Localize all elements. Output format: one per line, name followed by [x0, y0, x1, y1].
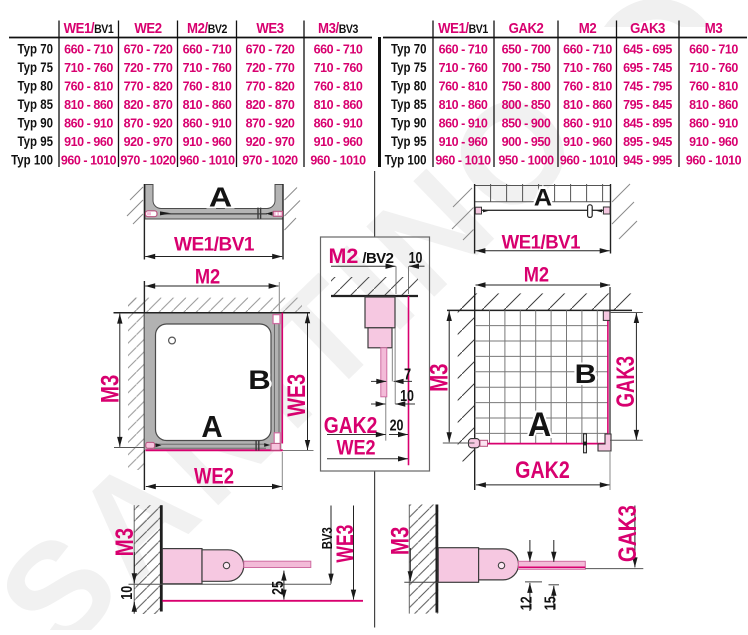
svg-text:700 - 750: 700 - 750 [502, 61, 551, 75]
svg-text:695 - 745: 695 - 745 [623, 61, 672, 75]
svg-text:Typ 95: Typ 95 [391, 134, 427, 149]
svg-text:M3: M3 [424, 363, 452, 391]
svg-text:Typ 85: Typ 85 [391, 97, 427, 112]
svg-text:870 - 920: 870 - 920 [124, 117, 173, 131]
svg-text:10: 10 [409, 250, 423, 268]
svg-text:820 - 870: 820 - 870 [246, 98, 295, 112]
svg-text:960 - 1010: 960 - 1010 [686, 154, 742, 168]
svg-text:860 - 910: 860 - 910 [183, 117, 232, 131]
svg-text:GAK3: GAK3 [611, 356, 639, 407]
svg-text:M3: M3 [705, 19, 723, 36]
svg-text:710 - 760: 710 - 760 [64, 61, 113, 75]
svg-text:860 - 910: 860 - 910 [439, 117, 488, 131]
svg-text:A: A [528, 406, 551, 444]
svg-text:Typ 70: Typ 70 [18, 42, 54, 57]
svg-text:20: 20 [390, 417, 404, 435]
svg-text:WE1/BV1: WE1/BV1 [502, 231, 580, 252]
svg-text:Typ 80: Typ 80 [391, 79, 427, 94]
svg-text:Typ 90: Typ 90 [18, 116, 54, 131]
svg-text:660 - 710: 660 - 710 [439, 43, 488, 57]
svg-text:Typ 75: Typ 75 [391, 60, 427, 75]
svg-text:760 - 810: 760 - 810 [183, 80, 232, 94]
svg-text:WE3: WE3 [256, 19, 284, 36]
svg-text:945 - 995: 945 - 995 [623, 154, 672, 168]
svg-text:670 - 720: 670 - 720 [124, 43, 173, 57]
svg-text:810 - 860: 810 - 860 [183, 98, 232, 112]
svg-text:760 - 810: 760 - 810 [439, 80, 488, 94]
svg-text:GAK2: GAK2 [515, 456, 570, 483]
svg-text:10: 10 [119, 586, 137, 600]
svg-text:B: B [575, 359, 597, 389]
svg-text:15: 15 [542, 596, 560, 610]
svg-text:A: A [534, 185, 552, 211]
svg-text:M2: M2 [524, 263, 549, 286]
svg-text:760 - 810: 760 - 810 [64, 80, 113, 94]
svg-text:GAK3: GAK3 [613, 505, 641, 562]
svg-text:770 - 820: 770 - 820 [246, 80, 295, 94]
svg-text:900 - 950: 900 - 950 [502, 135, 551, 149]
svg-text:7: 7 [404, 366, 411, 384]
svg-text:960 - 1010: 960 - 1010 [310, 154, 366, 168]
svg-text:Typ 100: Typ 100 [11, 153, 53, 168]
svg-text:960 - 1010: 960 - 1010 [560, 154, 616, 168]
svg-text:12: 12 [518, 596, 536, 610]
svg-text:760 - 810: 760 - 810 [563, 80, 612, 94]
svg-text:960 - 1010: 960 - 1010 [179, 154, 235, 168]
svg-text:Typ 80: Typ 80 [18, 79, 54, 94]
svg-text:810 - 860: 810 - 860 [314, 98, 363, 112]
svg-text:WE2: WE2 [336, 436, 375, 460]
svg-text:Typ 90: Typ 90 [391, 116, 427, 131]
svg-text:720 - 770: 720 - 770 [124, 61, 173, 75]
svg-text:B: B [248, 366, 270, 396]
svg-text:Typ 95: Typ 95 [18, 134, 54, 149]
svg-text:WE3: WE3 [283, 374, 311, 417]
svg-text:Typ 85: Typ 85 [18, 97, 54, 112]
svg-text:WE2: WE2 [134, 19, 162, 36]
svg-text:760 - 810: 760 - 810 [314, 80, 363, 94]
svg-text:750 - 800: 750 - 800 [502, 80, 551, 94]
svg-text:A: A [201, 410, 222, 444]
svg-text:760 - 810: 760 - 810 [689, 80, 738, 94]
svg-text:10: 10 [400, 388, 414, 406]
svg-text:960 - 1010: 960 - 1010 [435, 154, 491, 168]
svg-text:660 - 710: 660 - 710 [314, 43, 363, 57]
svg-text:970 - 1020: 970 - 1020 [120, 154, 176, 168]
svg-text:860 - 910: 860 - 910 [64, 117, 113, 131]
svg-text:800 - 850: 800 - 850 [502, 98, 551, 112]
svg-text:710 - 760: 710 - 760 [689, 61, 738, 75]
svg-text:950 - 1000: 950 - 1000 [498, 154, 554, 168]
svg-text:660 - 710: 660 - 710 [689, 43, 738, 57]
svg-text:M2: M2 [195, 265, 220, 288]
svg-text:25: 25 [270, 581, 288, 595]
svg-text:910 - 960: 910 - 960 [183, 135, 232, 149]
svg-text:650 - 700: 650 - 700 [502, 43, 551, 57]
svg-text:810 - 860: 810 - 860 [64, 98, 113, 112]
svg-text:645 - 695: 645 - 695 [623, 43, 672, 57]
svg-text:745 - 795: 745 - 795 [623, 80, 672, 94]
svg-text:845 - 895: 845 - 895 [623, 117, 672, 131]
svg-text:810 - 860: 810 - 860 [689, 98, 738, 112]
svg-text:660 - 710: 660 - 710 [563, 43, 612, 57]
svg-text:660 - 710: 660 - 710 [183, 43, 232, 57]
svg-text:710 - 760: 710 - 760 [439, 61, 488, 75]
svg-text:Typ 75: Typ 75 [18, 60, 54, 75]
svg-text:920 - 970: 920 - 970 [124, 135, 173, 149]
svg-text:710 - 760: 710 - 760 [183, 61, 232, 75]
svg-text:M3: M3 [385, 527, 413, 555]
svg-text:810 - 860: 810 - 860 [563, 98, 612, 112]
svg-text:860 - 910: 860 - 910 [563, 117, 612, 131]
svg-text:870 - 920: 870 - 920 [246, 117, 295, 131]
svg-text:Typ 100: Typ 100 [385, 153, 427, 168]
svg-text:895 - 945: 895 - 945 [623, 135, 672, 149]
svg-text:910 - 960: 910 - 960 [563, 135, 612, 149]
svg-text:910 - 960: 910 - 960 [439, 135, 488, 149]
svg-text:860 - 910: 860 - 910 [314, 117, 363, 131]
svg-text:Typ 70: Typ 70 [391, 42, 427, 57]
svg-text:850 - 900: 850 - 900 [502, 117, 551, 131]
svg-text:WE2: WE2 [194, 465, 234, 489]
svg-text:820 - 870: 820 - 870 [124, 98, 173, 112]
svg-text:GAK3: GAK3 [630, 19, 665, 36]
svg-text:920 - 970: 920 - 970 [246, 135, 295, 149]
svg-text:670 - 720: 670 - 720 [246, 43, 295, 57]
svg-text:960 - 1010: 960 - 1010 [61, 154, 117, 168]
svg-text:710 - 760: 710 - 760 [314, 61, 363, 75]
svg-text:720 - 770: 720 - 770 [246, 61, 295, 75]
svg-text:910 - 960: 910 - 960 [314, 135, 363, 149]
svg-text:795 - 845: 795 - 845 [623, 98, 672, 112]
svg-text:910 - 960: 910 - 960 [64, 135, 113, 149]
svg-text:970 - 1020: 970 - 1020 [242, 154, 298, 168]
svg-text:M2: M2 [579, 19, 597, 36]
svg-text:860 - 910: 860 - 910 [689, 117, 738, 131]
svg-text:A: A [209, 182, 232, 213]
svg-text:770 - 820: 770 - 820 [124, 80, 173, 94]
svg-text:810 - 860: 810 - 860 [439, 98, 488, 112]
svg-text:710 - 760: 710 - 760 [563, 61, 612, 75]
svg-text:WE3: WE3 [332, 525, 358, 563]
svg-text:910 - 960: 910 - 960 [689, 135, 738, 149]
svg-text:660 - 710: 660 - 710 [64, 43, 113, 57]
svg-text:GAK2: GAK2 [509, 19, 544, 36]
svg-text:WE1/BV1: WE1/BV1 [174, 234, 255, 255]
